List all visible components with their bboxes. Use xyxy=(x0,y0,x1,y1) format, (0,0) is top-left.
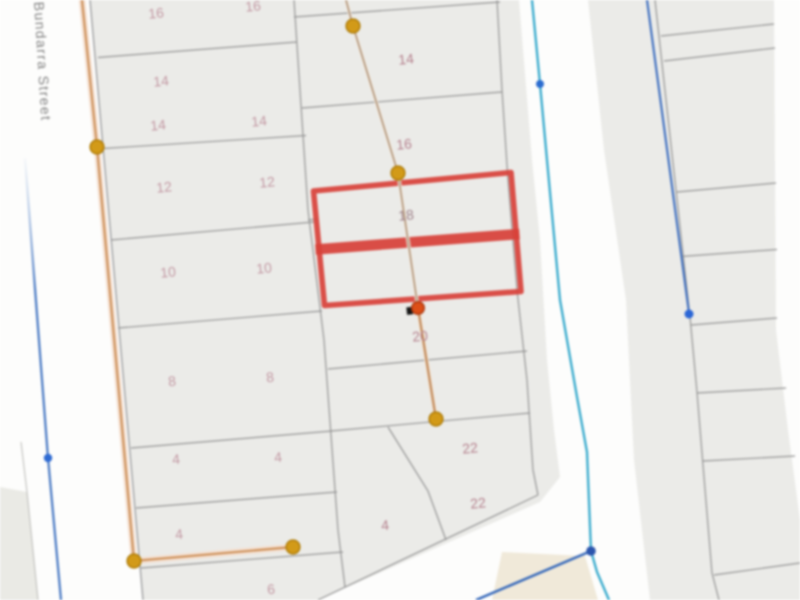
svg-text:22: 22 xyxy=(469,494,486,511)
svg-text:14: 14 xyxy=(149,116,166,133)
svg-text:14: 14 xyxy=(397,50,414,67)
svg-text:16: 16 xyxy=(147,4,164,21)
svg-text:12: 12 xyxy=(258,173,275,190)
svg-text:20: 20 xyxy=(411,327,428,344)
svg-text:10: 10 xyxy=(255,259,272,276)
svg-text:14: 14 xyxy=(250,112,267,129)
svg-text:22: 22 xyxy=(461,439,478,456)
svg-text:14: 14 xyxy=(152,72,169,89)
svg-text:18: 18 xyxy=(397,206,414,223)
svg-text:16: 16 xyxy=(395,135,412,152)
svg-text:10: 10 xyxy=(159,263,176,280)
svg-text:16: 16 xyxy=(244,0,261,15)
svg-text:12: 12 xyxy=(155,178,172,195)
